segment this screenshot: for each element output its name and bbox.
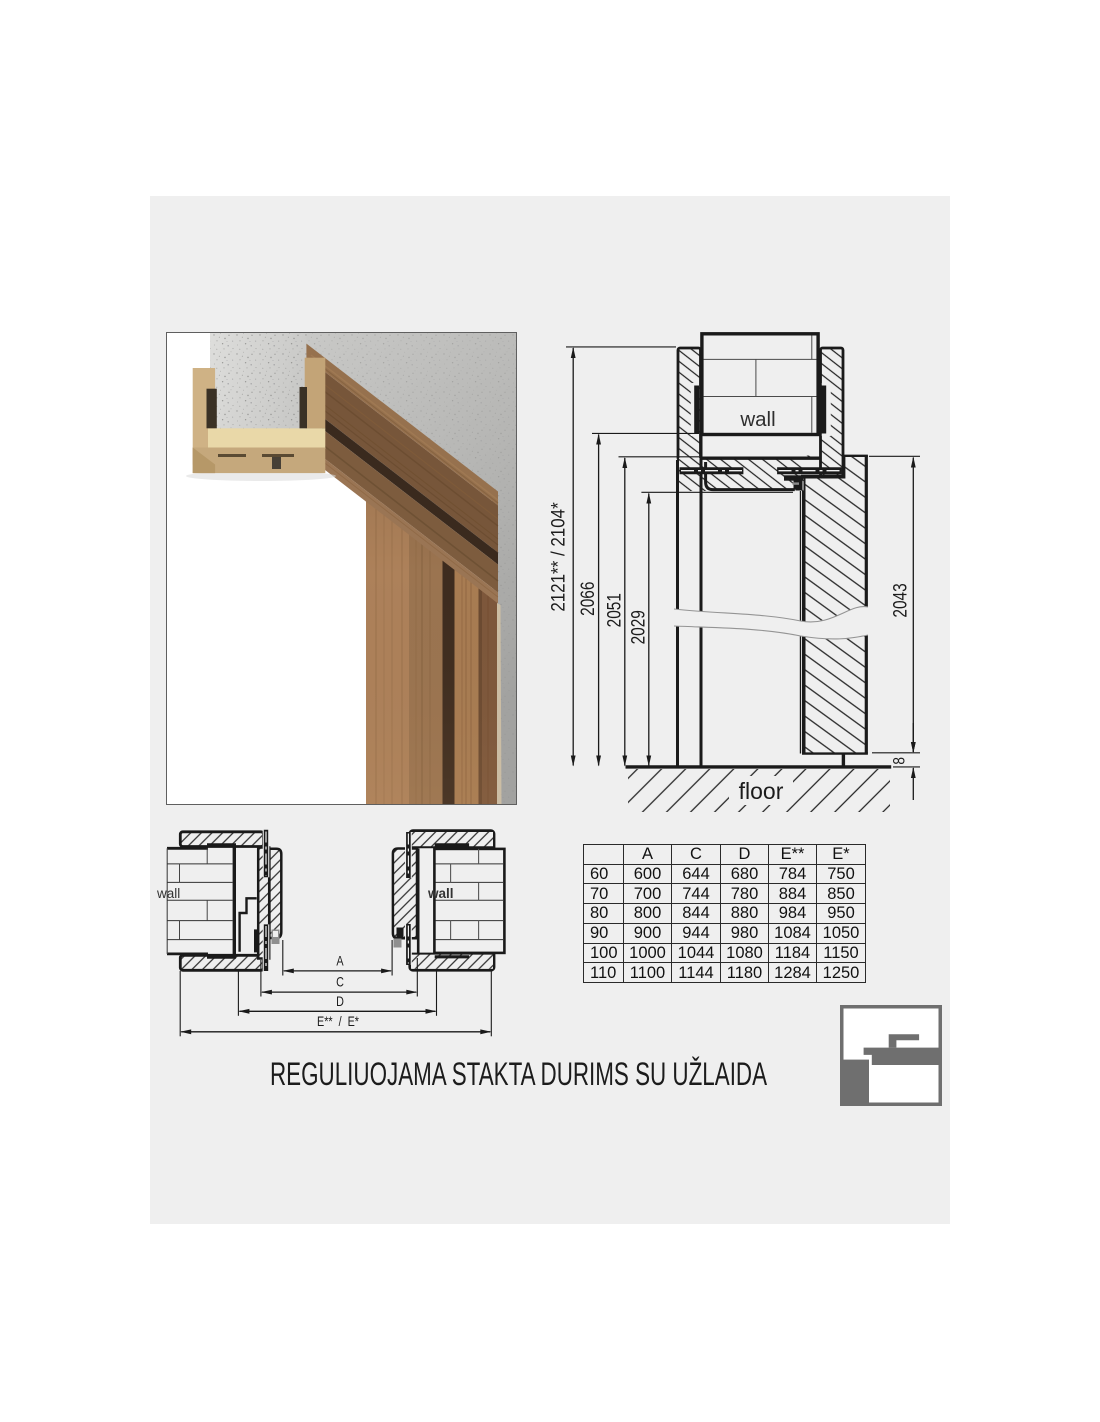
svg-text:wall: wall <box>427 886 454 901</box>
svg-text:C: C <box>336 974 344 989</box>
svg-text:A: A <box>336 953 344 968</box>
svg-text:8: 8 <box>890 757 909 765</box>
svg-text:E** / E*: E** / E* <box>317 1014 359 1029</box>
svg-text:wall: wall <box>739 408 775 431</box>
svg-text:D: D <box>336 994 344 1009</box>
svg-text:2029: 2029 <box>627 610 649 644</box>
svg-text:2066: 2066 <box>576 582 598 616</box>
svg-text:2051: 2051 <box>603 593 625 627</box>
svg-text:2121** / 2104*: 2121** / 2104* <box>546 502 568 611</box>
svg-text:2043: 2043 <box>889 583 911 617</box>
svg-text:floor: floor <box>739 778 784 804</box>
svg-text:wall: wall <box>156 886 180 901</box>
